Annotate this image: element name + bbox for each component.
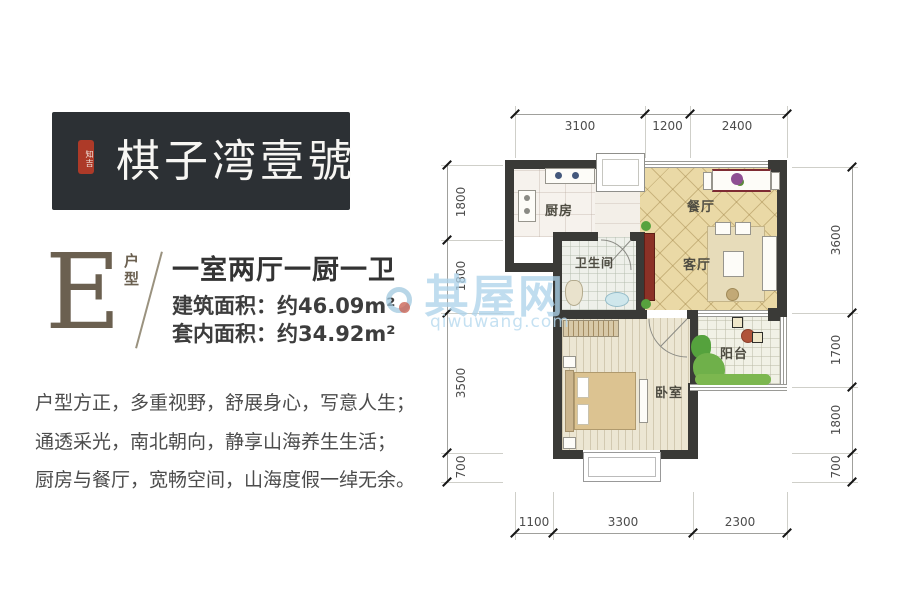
brand-logo-box: 知吉 棋子湾壹號	[52, 112, 350, 210]
room-label-balcony: 阳台	[720, 343, 748, 362]
room-label-bedroom: 卧室	[655, 382, 683, 401]
armchair	[735, 222, 751, 235]
extension-line	[441, 453, 503, 454]
dim-label: 2400	[697, 119, 777, 133]
brand-name: 棋子湾壹號	[116, 130, 342, 194]
armchair	[715, 222, 731, 235]
room-label-kitchen: 厨房	[545, 200, 573, 219]
burner-icon	[524, 208, 530, 214]
wardrobe	[563, 320, 619, 337]
plant-icon	[641, 221, 651, 231]
dim-label: 1800	[454, 180, 468, 224]
balcony-chair	[752, 332, 763, 343]
plant-icon	[695, 374, 771, 385]
dim-label: 2300	[705, 515, 775, 529]
dim-label: 3300	[588, 515, 658, 529]
inner-area-text: 套内面积：约34.92m²	[172, 318, 396, 348]
floor-plan: 厨房 餐厅 卫生间 客厅 卧室 阳台	[505, 160, 787, 482]
flyer-canvas: 知吉 棋子湾壹號 E 户型 一室两厅一厨一卫 建筑面积：约46.09m² 套内面…	[0, 0, 900, 600]
wash-basin	[605, 292, 629, 307]
dimension-line-right	[852, 167, 853, 482]
room-label-dining: 餐厅	[687, 196, 715, 215]
nightstand	[563, 356, 576, 368]
description-line: 通透采光，南北朝向，静享山海养生生活；	[35, 427, 435, 454]
extension-line	[441, 482, 503, 483]
bed-headboard	[565, 370, 574, 432]
dimension-line-top	[515, 114, 787, 115]
extension-line	[441, 240, 503, 241]
built-area-text: 建筑面积：约46.09m²	[172, 290, 396, 320]
burner-icon	[524, 195, 530, 201]
kitchen-sink	[545, 168, 595, 184]
pillow	[577, 404, 589, 425]
flower-centerpiece-icon	[731, 173, 743, 185]
description-line: 户型方正，多重视野，舒展身心，写意人生；	[35, 388, 435, 415]
room-label-bathroom: 卫生间	[575, 254, 614, 271]
unit-letter: E	[45, 243, 121, 342]
faucet-icon	[555, 172, 562, 179]
watermark-logo-icon	[399, 302, 410, 313]
bedroom-bench	[639, 379, 648, 423]
unit-title: 一室两厅一厨一卫	[172, 248, 396, 287]
dining-chair	[703, 172, 712, 190]
faucet-icon	[572, 172, 579, 179]
dim-label: 1100	[504, 515, 564, 529]
description-line: 厨房与餐厅，宽畅空间，山海度假一绰无余。	[35, 465, 435, 492]
pouf	[726, 288, 739, 301]
plant-icon	[641, 299, 651, 309]
coffee-table	[723, 251, 744, 277]
seal-stamp-icon: 知吉	[78, 140, 94, 174]
dim-label: 1200	[645, 119, 690, 133]
dim-label: 1700	[829, 328, 843, 372]
dim-label: 3500	[454, 361, 468, 405]
tv-cabinet	[644, 233, 655, 301]
dim-label: 700	[829, 445, 843, 489]
nightstand	[563, 437, 576, 449]
dim-label: 1800	[454, 254, 468, 298]
dimension-line-bottom	[515, 533, 787, 534]
toilet	[565, 280, 583, 306]
dim-label: 1800	[829, 398, 843, 442]
unit-type-label: 户型	[121, 253, 142, 289]
dining-chair	[771, 172, 780, 190]
pillow	[577, 377, 589, 398]
dim-label: 3100	[540, 119, 620, 133]
extension-line	[441, 313, 503, 314]
extension-line	[441, 165, 503, 166]
sofa	[762, 236, 777, 291]
dim-label: 700	[454, 445, 468, 489]
dim-label: 3600	[829, 218, 843, 262]
room-label-living: 客厅	[683, 254, 711, 273]
dimension-line-left	[447, 165, 448, 482]
balcony-chair	[732, 317, 743, 328]
